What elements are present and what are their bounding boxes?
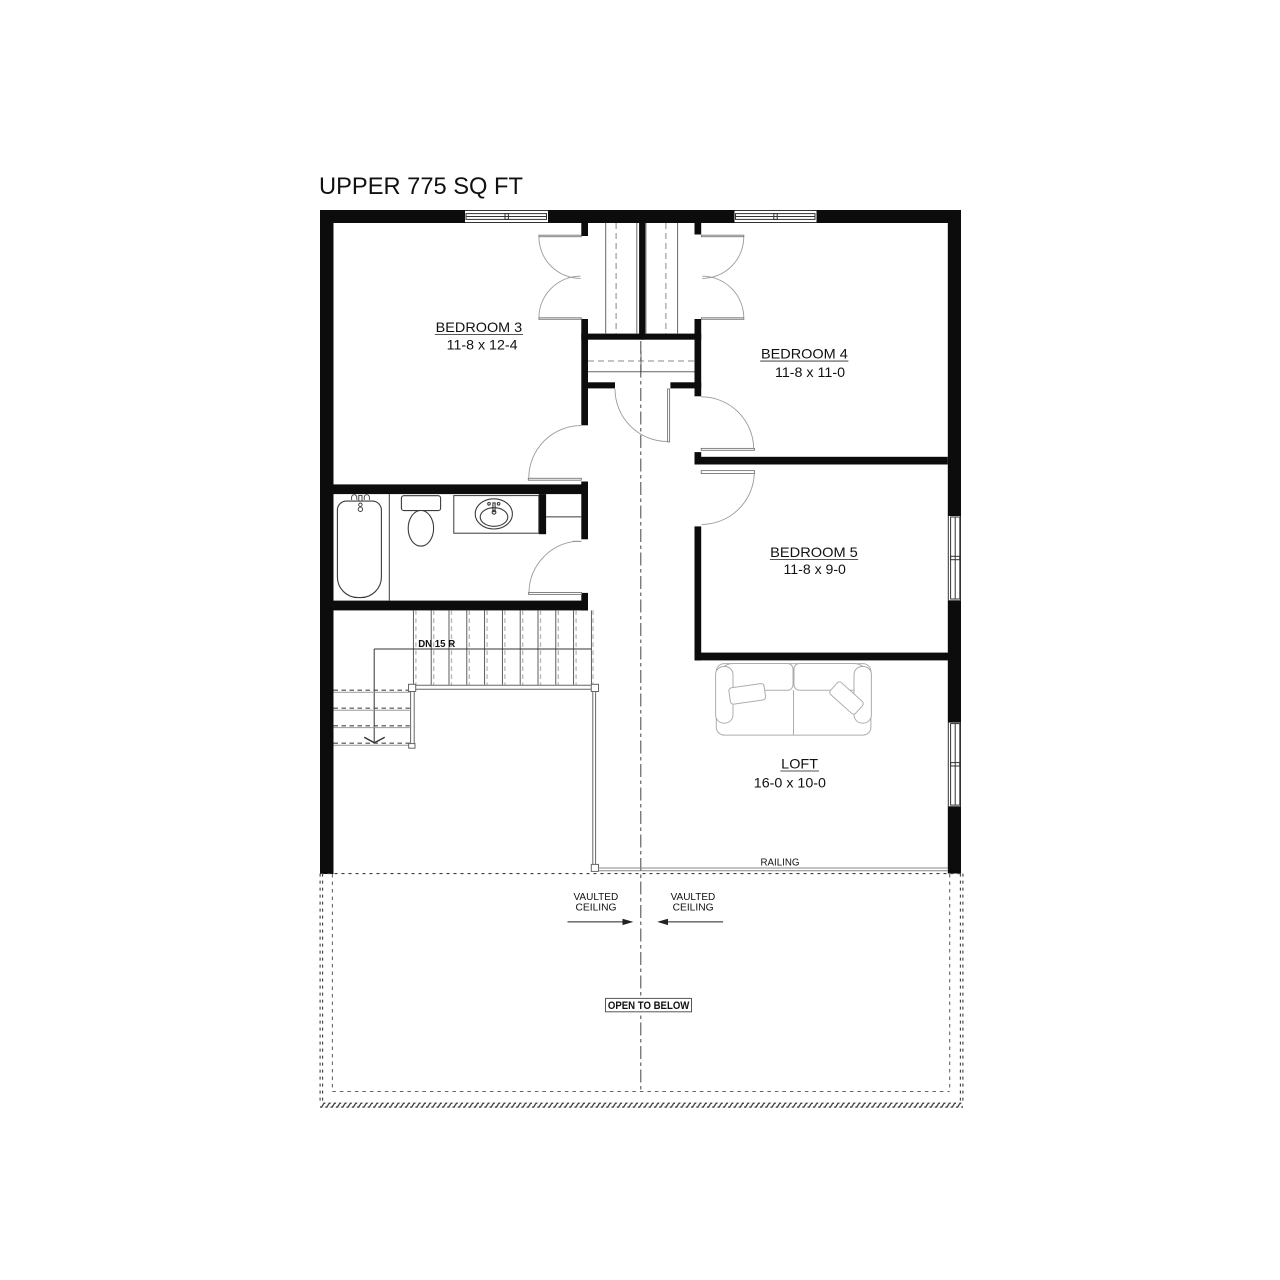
- svg-text:CEILING: CEILING: [673, 902, 714, 913]
- svg-text:BEDROOM 5: BEDROOM 5: [770, 544, 858, 560]
- svg-text:16-0 x 10-0: 16-0 x 10-0: [754, 774, 826, 790]
- svg-text:BEDROOM 4: BEDROOM 4: [761, 345, 848, 361]
- svg-text:LOFT: LOFT: [781, 755, 818, 771]
- svg-text:11-8 x 9-0: 11-8 x 9-0: [784, 561, 847, 577]
- svg-text:UPPER 775 SQ FT: UPPER 775 SQ FT: [319, 173, 523, 200]
- svg-text:11-8 x 11-0: 11-8 x 11-0: [775, 364, 845, 380]
- svg-text:11-8 x 12-4: 11-8 x 12-4: [447, 336, 518, 352]
- svg-text:RAILING: RAILING: [761, 856, 800, 868]
- svg-text:BEDROOM 3: BEDROOM 3: [436, 319, 523, 335]
- svg-text:OPEN TO BELOW: OPEN TO BELOW: [608, 1000, 690, 1012]
- svg-text:DN 15 R: DN 15 R: [418, 638, 455, 650]
- svg-text:VAULTED: VAULTED: [671, 892, 716, 903]
- svg-text:CEILING: CEILING: [576, 902, 617, 913]
- svg-text:VAULTED: VAULTED: [574, 892, 619, 903]
